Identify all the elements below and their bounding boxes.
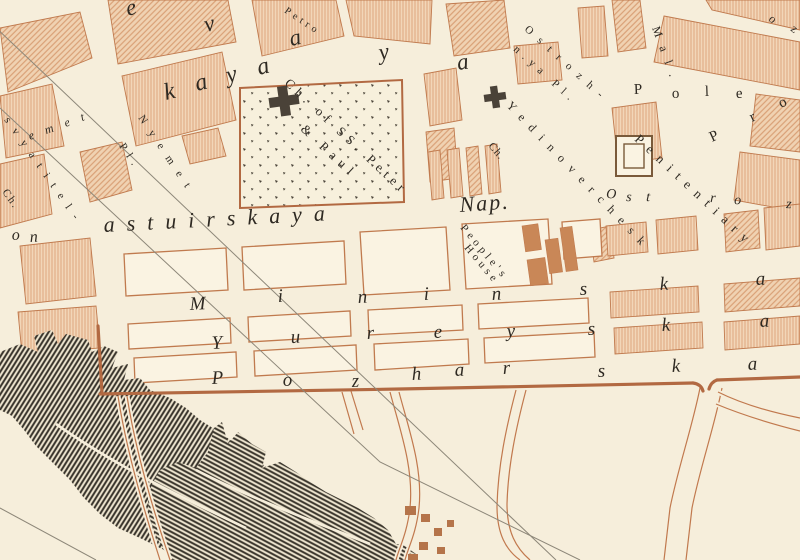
street-label: P: [210, 367, 224, 389]
building-solid: [522, 224, 541, 252]
city-block-hatched: [610, 286, 699, 318]
city-block-hatched: [614, 322, 703, 354]
city-block-hatched: [20, 238, 96, 304]
street-label: i: [423, 284, 429, 305]
city-block-hatched: [446, 0, 510, 56]
street-label: s: [579, 279, 587, 300]
street-label: a: [747, 354, 758, 375]
street-label: u: [290, 327, 301, 348]
small-building: [419, 542, 428, 550]
street-label: o: [734, 193, 742, 208]
small-building: [447, 520, 454, 527]
street-label: n: [29, 229, 38, 246]
building-solid: [527, 257, 548, 285]
small-building: [434, 528, 442, 536]
city-block-hatched: [612, 0, 646, 52]
street-label: O: [606, 187, 617, 203]
street-label: e: [433, 322, 443, 343]
city-block-hatched: [424, 68, 462, 126]
city-block-outlined: [484, 332, 595, 363]
street-label: o: [282, 370, 293, 391]
street-label: n: [357, 287, 368, 308]
city-block-outlined: [360, 227, 450, 295]
street-label: P: [634, 82, 643, 98]
street-label: a: [454, 360, 465, 381]
map-viewport[interactable]: evayakayaPetroemetNyemetPl.svyatitel-Ch.…: [0, 0, 800, 560]
street-label: k: [671, 356, 681, 377]
street-label: e: [736, 86, 744, 102]
city-block-hatched: [578, 6, 608, 58]
street-label: h: [411, 364, 422, 385]
small-building: [421, 514, 430, 522]
city-block-hatched: [656, 216, 698, 254]
street-label: i: [277, 286, 283, 307]
street-label: o: [672, 86, 680, 102]
historical-city-map: evayakayaPetroemetNyemetPl.svyatitel-Ch.…: [0, 0, 800, 560]
street-label: M: [188, 293, 207, 315]
city-block-hatched: [764, 204, 800, 250]
street-label: n: [491, 284, 502, 305]
small-building: [408, 554, 418, 560]
street-label: l: [705, 84, 710, 100]
street-label: a: [759, 311, 770, 332]
street-label: k: [661, 315, 671, 336]
street-label: a: [755, 269, 766, 290]
street-label: o: [11, 227, 20, 244]
street-label: k: [659, 274, 669, 295]
small-building: [437, 547, 445, 554]
small-building: [405, 506, 416, 515]
street-label: s: [587, 319, 595, 340]
street-label: Nap.: [458, 189, 511, 218]
city-block-outlined: [368, 305, 463, 335]
city-block-outlined: [242, 241, 346, 290]
city-block-outlined: [254, 345, 357, 376]
street-label: s: [597, 361, 605, 382]
